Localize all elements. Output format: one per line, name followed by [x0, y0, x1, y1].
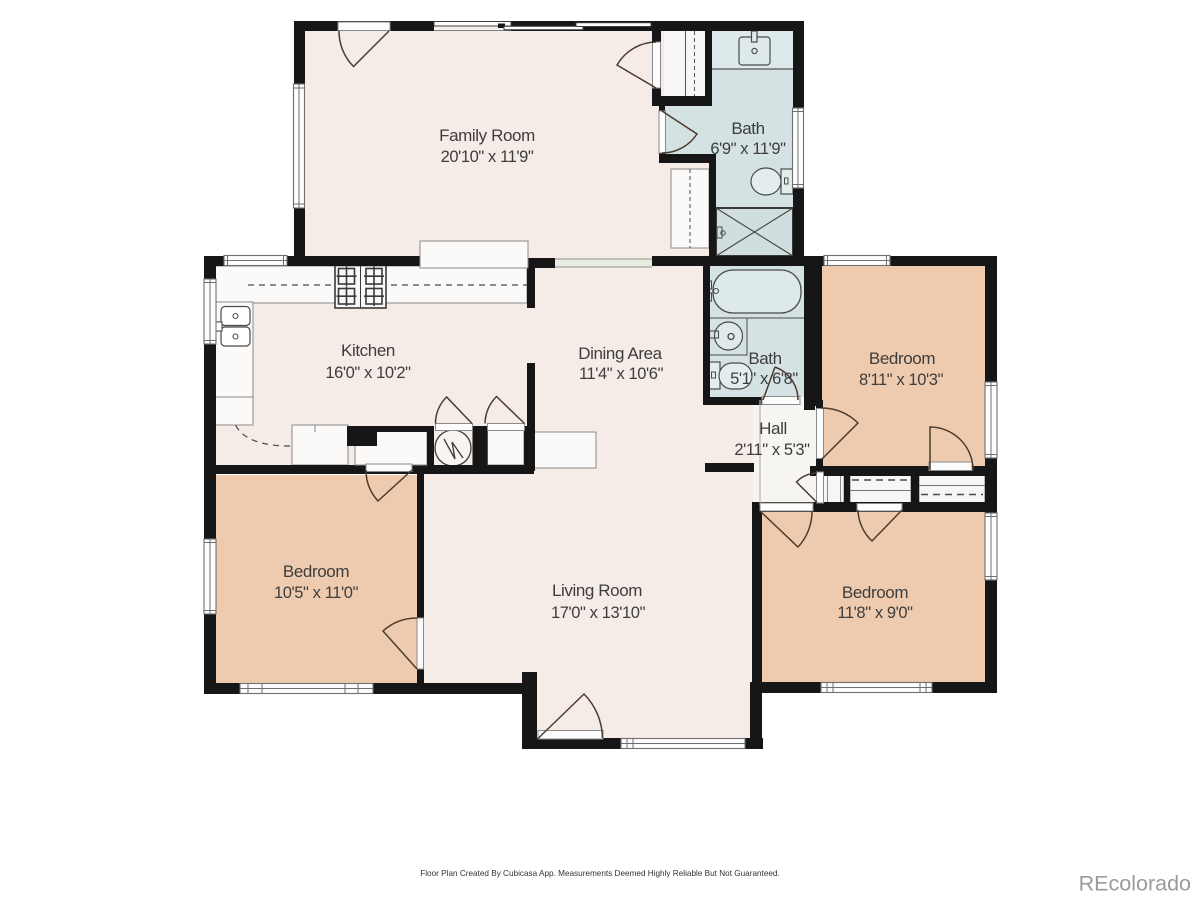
svg-text:REcolorado: REcolorado: [1079, 872, 1191, 896]
svg-text:Floor Plan Created By Cubicasa: Floor Plan Created By Cubicasa App. Meas…: [420, 869, 780, 878]
svg-text:20'10" x 11'9": 20'10" x 11'9": [441, 148, 534, 166]
svg-text:Living Room: Living Room: [552, 581, 642, 600]
svg-text:Bedroom: Bedroom: [283, 562, 349, 581]
svg-text:Bath: Bath: [748, 349, 781, 368]
svg-text:Bath: Bath: [731, 119, 764, 138]
svg-text:Kitchen: Kitchen: [341, 341, 395, 360]
svg-text:11'4" x 10'6": 11'4" x 10'6": [579, 365, 664, 383]
svg-text:Family Room: Family Room: [439, 126, 535, 145]
svg-text:5'1" x 6'8": 5'1" x 6'8": [730, 370, 798, 388]
svg-text:Dining Area: Dining Area: [578, 344, 662, 363]
svg-text:Bedroom: Bedroom: [869, 349, 935, 368]
svg-text:Hall: Hall: [759, 419, 787, 438]
svg-text:Bedroom: Bedroom: [842, 583, 908, 602]
svg-text:17'0" x 13'10": 17'0" x 13'10": [551, 604, 646, 622]
svg-text:16'0" x 10'2": 16'0" x 10'2": [325, 364, 411, 382]
svg-text:6'9" x 11'9": 6'9" x 11'9": [710, 140, 786, 158]
svg-text:10'5" x 11'0": 10'5" x 11'0": [274, 584, 359, 602]
svg-text:8'11" x 10'3": 8'11" x 10'3": [859, 371, 944, 389]
svg-text:11'8" x 9'0": 11'8" x 9'0": [837, 604, 913, 622]
svg-text:2'11" x 5'3": 2'11" x 5'3": [734, 441, 810, 459]
